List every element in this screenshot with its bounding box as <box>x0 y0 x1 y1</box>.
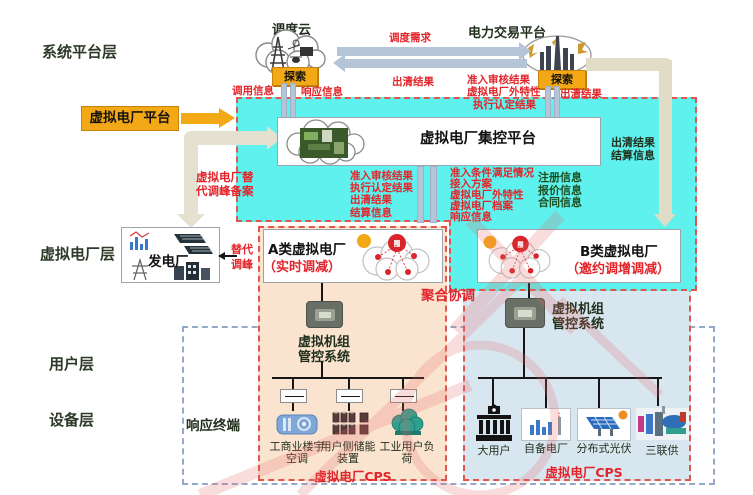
response-terminal-label: 响应终端 <box>186 414 240 434</box>
platform-reg-group: 注册信息 报价信息 合同信息 <box>538 172 582 210</box>
vpp-pipe-down-arrowhead <box>177 214 205 228</box>
b-drop-2 <box>545 379 547 408</box>
a-relay-3-contact <box>395 396 414 397</box>
trade-link-bar-2 <box>554 86 560 118</box>
a-header-to-unit-line <box>321 283 323 302</box>
b-drop-3 <box>598 379 600 408</box>
control-platform-title: 虚拟电厂集控平台 <box>420 127 536 148</box>
plant-b-cps-label: 虚拟电厂CPS <box>543 462 625 481</box>
platform-to-plant-bar-1 <box>417 166 424 223</box>
layer-label-user: 用户层 <box>49 353 94 374</box>
label-clearing-result-left: 出清结果 <box>392 77 434 88</box>
plant-b-title: B类虚拟电厂 <box>580 240 658 260</box>
a-relay-2-contact <box>341 396 360 397</box>
platform-to-plant-bar-2 <box>430 166 437 223</box>
vpp-platform-arrowhead <box>219 108 235 128</box>
a-drop-1 <box>292 379 294 389</box>
a-unit-system-label: 虚拟机组 管控系统 <box>289 335 359 365</box>
trade-link-bar-1 <box>545 86 551 118</box>
vpp-platform-label: 虚拟电厂平台 <box>90 110 171 126</box>
plant-a-aggregator-icon <box>352 231 441 285</box>
a-relay-2 <box>336 389 363 403</box>
trade-to-b-pipe-arrowhead <box>654 214 676 227</box>
a-unit-controller-display <box>319 312 331 318</box>
industrial-load-icon <box>389 407 425 441</box>
b-header-to-unit-line <box>528 283 530 298</box>
b-unit-controller-display <box>518 310 532 317</box>
a-unit-to-bus-line <box>321 362 323 378</box>
hvac-label: 工商业楼宇 空调 <box>268 441 326 464</box>
storage-battery-icon <box>332 411 370 440</box>
self-owned-plant-icon <box>521 408 571 441</box>
b-unit-system-label: 虚拟机组 管控系统 <box>552 302 604 332</box>
industrial-load-label: 工业用户负 荷 <box>378 441 436 464</box>
a-drop-1b <box>292 403 294 411</box>
distributed-pv-icon <box>577 408 631 441</box>
a-drop-2 <box>348 379 350 389</box>
vpp-architecture-diagram: 系统平台层 虚拟电厂层 用户层 设备层 调度云 探索 电力交易平台 <box>0 0 753 495</box>
label-response-info: 响应信息 <box>301 87 343 98</box>
large-user-label: 大用户 <box>474 445 514 457</box>
self-owned-plant-label: 自备电厂 <box>519 443 573 455</box>
layer-label-vpp: 虚拟电厂层 <box>40 243 115 264</box>
clearing-result-arrow <box>345 59 527 68</box>
large-user-icon <box>474 404 514 448</box>
dispatch-link-bar-1 <box>281 83 287 118</box>
control-platform-cloud-icon <box>280 118 368 170</box>
replace-peak-arrowhead <box>218 252 225 260</box>
label-clearing-result-right: 出清结果 <box>560 89 602 100</box>
a-relay-1-contact <box>285 396 304 397</box>
layer-label-device: 设备层 <box>49 409 94 430</box>
a-relay-1 <box>280 389 307 403</box>
dispatch-link-bar-2 <box>290 83 296 118</box>
b-unit-controller-icon <box>505 298 545 328</box>
platform-mid-group: 准入条件满足情况 接入方案 虚拟电厂外特性 虚拟电厂档案 响应信息 <box>450 168 534 223</box>
b-drop-1 <box>492 379 494 406</box>
label-call-info: 调用信息 <box>232 86 274 97</box>
platform-left-group: 准入审核结果 执行认定结果 出清结果 结算信息 <box>350 170 413 219</box>
plant-a-cps-label: 虚拟电厂CPS <box>312 466 394 485</box>
power-plant-label: 发电厂 <box>148 250 189 270</box>
layer-label-system: 系统平台层 <box>42 41 117 62</box>
a-drop-3 <box>402 379 404 389</box>
platform-right-group: 出清结果 结算信息 <box>611 136 655 162</box>
dispatch-demand-arrowhead <box>519 42 531 60</box>
trigeneration-icon <box>636 404 689 448</box>
label-dispatch-demand: 调度需求 <box>389 33 431 44</box>
label-access-audit-result: 准入审核结果 <box>467 75 530 86</box>
a-relay-3 <box>390 389 417 403</box>
aggregation-label: 聚合协调 <box>421 284 475 304</box>
b-drop-4 <box>657 379 659 406</box>
a-unit-controller-screen <box>315 309 335 321</box>
filing-note: 虚拟电厂替 代调峰备案 <box>196 170 254 198</box>
trigeneration-label: 三联供 <box>640 445 684 457</box>
a-drop-2b <box>348 403 350 411</box>
b-unit-controller-screen <box>514 307 536 320</box>
distributed-pv-label: 分布式光伏 <box>574 443 634 455</box>
replace-peak-note: 替代 调峰 <box>231 243 253 272</box>
label-exec-confirm-result: 执行认定结果 <box>473 100 536 111</box>
plant-a-title: A类虚拟电厂 <box>268 238 346 258</box>
dispatch-demand-arrow <box>337 47 519 56</box>
label-vpp-external-char: 虚拟电厂外特性 <box>467 87 541 98</box>
vpp-platform-arrow <box>181 113 221 124</box>
storage-label: 用户侧储能 装置 <box>320 441 376 464</box>
trade-to-b-pipe-vertical <box>659 60 672 214</box>
power-plant-box: 发电厂 <box>121 227 220 283</box>
a-unit-controller-icon <box>306 301 343 328</box>
b-bus-line <box>478 377 662 379</box>
plant-b-subtitle: （邀约调增调减） <box>566 258 670 277</box>
clearing-result-arrowhead <box>333 54 345 72</box>
hvac-icon <box>276 411 318 442</box>
b-unit-to-bus-line <box>523 328 525 377</box>
vpp-platform-box: 虚拟电厂平台 <box>81 106 179 131</box>
plant-a-subtitle: （实时调减） <box>263 256 341 275</box>
plant-b-aggregator-icon <box>479 231 561 285</box>
